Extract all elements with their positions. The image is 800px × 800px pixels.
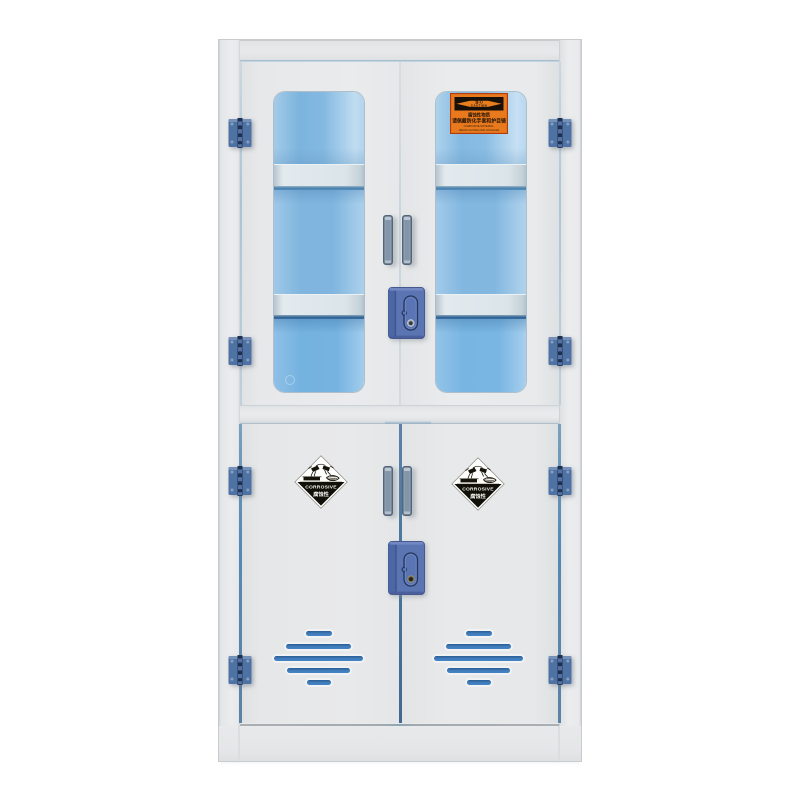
svg-text:请佩戴防化手套和护目镜: 请佩戴防化手套和护目镜 [452,118,506,125]
svg-text:CORROSIVE MATERIAL,: CORROSIVE MATERIAL, [464,124,495,128]
svg-text:CAUTION: CAUTION [471,104,487,108]
svg-text:WEAR GLOVES AND GOGGLES: WEAR GLOVES AND GOGGLES [459,128,500,132]
svg-text:腐蚀性物质: 腐蚀性物质 [468,112,491,119]
